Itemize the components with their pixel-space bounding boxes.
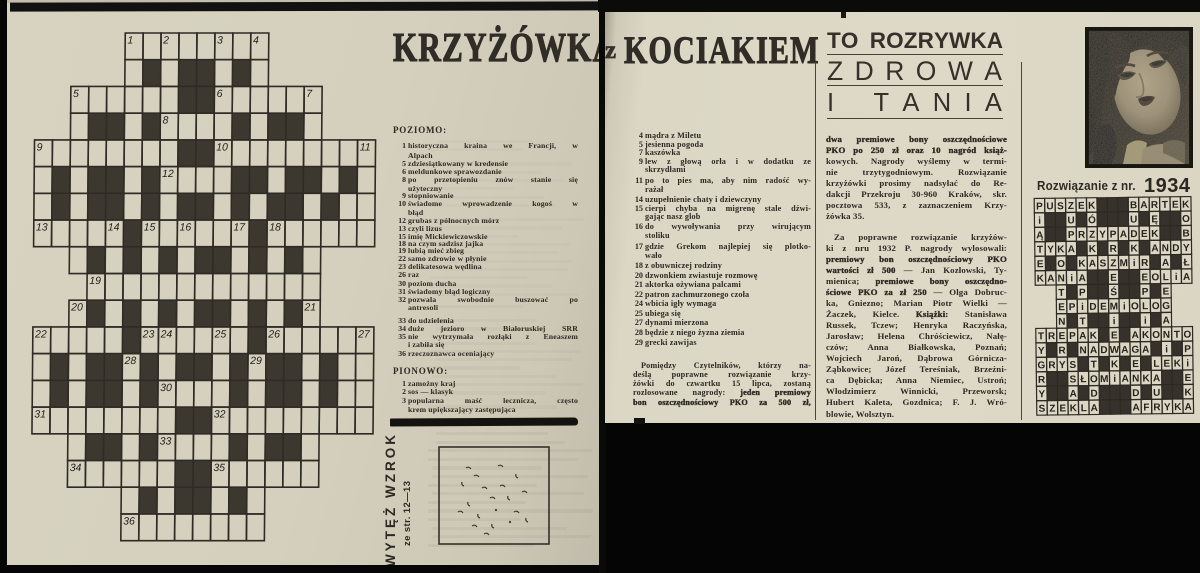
svg-text:30: 30 bbox=[160, 381, 172, 393]
svg-text:A: A bbox=[1091, 403, 1098, 414]
svg-text:O: O bbox=[1182, 214, 1190, 225]
svg-text:5: 5 bbox=[72, 87, 78, 99]
svg-text:6: 6 bbox=[216, 87, 222, 99]
svg-text:13: 13 bbox=[35, 221, 47, 233]
svg-text:A: A bbox=[1131, 330, 1138, 341]
svg-text:9: 9 bbox=[36, 141, 42, 153]
svg-text:i: i bbox=[1081, 302, 1084, 313]
svg-text:K: K bbox=[1182, 200, 1190, 211]
svg-text:D: D bbox=[1090, 389, 1097, 400]
svg-text:31: 31 bbox=[34, 408, 46, 420]
svg-text:D: D bbox=[1130, 229, 1137, 240]
svg-text:27: 27 bbox=[357, 328, 371, 340]
svg-text:11: 11 bbox=[359, 141, 370, 153]
svg-text:P: P bbox=[1184, 344, 1191, 355]
svg-text:K: K bbox=[1174, 359, 1182, 370]
svg-text:Y: Y bbox=[1038, 389, 1045, 400]
svg-text:A: A bbox=[1079, 331, 1086, 342]
svg-text:Y: Y bbox=[1047, 245, 1054, 256]
svg-text:Y: Y bbox=[1183, 243, 1190, 254]
svg-text:L: L bbox=[1081, 403, 1087, 414]
svg-text:15: 15 bbox=[143, 221, 155, 233]
svg-text:T: T bbox=[1037, 245, 1043, 256]
svg-text:E: E bbox=[1059, 403, 1066, 414]
svg-text:G: G bbox=[1037, 360, 1045, 371]
svg-text:R: R bbox=[1153, 402, 1161, 413]
svg-text:10: 10 bbox=[216, 141, 228, 153]
svg-text:E: E bbox=[1141, 229, 1148, 240]
svg-text:S: S bbox=[1070, 374, 1077, 385]
svg-text:25: 25 bbox=[213, 328, 226, 340]
svg-text:E: E bbox=[1132, 359, 1139, 370]
svg-text:Z: Z bbox=[1110, 258, 1116, 269]
svg-text:2: 2 bbox=[162, 34, 169, 46]
svg-text:O: O bbox=[1057, 259, 1065, 270]
svg-text:N: N bbox=[1163, 330, 1170, 341]
svg-text:20: 20 bbox=[70, 301, 83, 313]
svg-text:A: A bbox=[1090, 345, 1097, 356]
svg-text:D: D bbox=[1100, 345, 1107, 356]
svg-text:A: A bbox=[1047, 274, 1054, 285]
svg-text:O: O bbox=[1152, 330, 1160, 341]
svg-text:A: A bbox=[1069, 389, 1076, 400]
svg-text:i: i bbox=[1113, 374, 1116, 385]
svg-text:E: E bbox=[1172, 200, 1179, 211]
svg-text:P: P bbox=[1142, 287, 1149, 298]
svg-text:E: E bbox=[1110, 273, 1117, 284]
svg-text:E: E bbox=[1163, 359, 1170, 370]
svg-text:T: T bbox=[1038, 331, 1044, 342]
svg-text:E: E bbox=[1078, 201, 1085, 212]
svg-text:Ł: Ł bbox=[1183, 257, 1189, 268]
svg-text:U: U bbox=[1067, 215, 1074, 226]
svg-text:A: A bbox=[1068, 244, 1075, 255]
svg-text:22: 22 bbox=[33, 328, 46, 340]
svg-text:M: M bbox=[1110, 302, 1118, 313]
svg-text:3: 3 bbox=[217, 34, 223, 46]
svg-text:Z: Z bbox=[1089, 230, 1095, 241]
svg-text:8: 8 bbox=[162, 114, 168, 126]
svg-text:S: S bbox=[1039, 404, 1046, 415]
svg-text:T: T bbox=[1162, 200, 1168, 211]
svg-text:i: i bbox=[1133, 258, 1136, 269]
svg-text:D: D bbox=[1089, 302, 1096, 313]
svg-text:23: 23 bbox=[141, 328, 154, 340]
svg-text:Y: Y bbox=[1099, 229, 1106, 240]
svg-text:U: U bbox=[1153, 388, 1160, 399]
svg-text:M: M bbox=[1120, 258, 1128, 269]
svg-text:O: O bbox=[1151, 272, 1159, 283]
svg-text:N: N bbox=[1079, 345, 1086, 356]
svg-text:Y: Y bbox=[1164, 402, 1171, 413]
svg-text:A: A bbox=[1151, 243, 1158, 254]
svg-text:K: K bbox=[1142, 373, 1150, 384]
svg-text:P: P bbox=[1069, 331, 1076, 342]
svg-text:O: O bbox=[1152, 301, 1160, 312]
svg-text:E: E bbox=[1141, 272, 1148, 283]
svg-text:32: 32 bbox=[213, 408, 225, 420]
svg-text:B: B bbox=[1182, 228, 1189, 239]
svg-text:D: D bbox=[1132, 388, 1139, 399]
svg-text:U: U bbox=[1130, 215, 1137, 226]
svg-text:L: L bbox=[1153, 359, 1159, 370]
svg-text:Ł: Ł bbox=[1080, 374, 1086, 385]
svg-text:E: E bbox=[1100, 302, 1107, 313]
svg-text:B: B bbox=[1130, 200, 1137, 211]
svg-text:12: 12 bbox=[161, 168, 173, 180]
svg-text:i: i bbox=[1070, 273, 1073, 284]
svg-text:21: 21 bbox=[303, 301, 316, 313]
svg-text:Z: Z bbox=[1068, 201, 1074, 212]
svg-text:16: 16 bbox=[179, 221, 191, 233]
svg-text:K: K bbox=[1130, 243, 1138, 254]
svg-text:N: N bbox=[1162, 243, 1169, 254]
svg-text:O: O bbox=[1090, 374, 1098, 385]
svg-text:O: O bbox=[1183, 330, 1191, 341]
svg-text:14: 14 bbox=[107, 221, 119, 233]
svg-text:P: P bbox=[1036, 201, 1043, 212]
svg-text:E: E bbox=[1163, 287, 1170, 298]
svg-text:24: 24 bbox=[159, 328, 172, 340]
svg-text:Ą: Ą bbox=[1036, 230, 1043, 241]
svg-text:O: O bbox=[1131, 301, 1139, 312]
svg-text:A: A bbox=[1078, 273, 1085, 284]
svg-text:N: N bbox=[1132, 374, 1139, 385]
svg-text:R: R bbox=[1048, 331, 1056, 342]
svg-text:33: 33 bbox=[159, 435, 171, 447]
svg-text:R: R bbox=[1151, 200, 1159, 211]
svg-text:K: K bbox=[1037, 274, 1045, 285]
svg-text:R: R bbox=[1048, 360, 1056, 371]
svg-text:U: U bbox=[1046, 201, 1053, 212]
svg-text:P: P bbox=[1068, 230, 1075, 241]
svg-text:i: i bbox=[1186, 358, 1189, 369]
svg-text:R: R bbox=[1038, 375, 1046, 386]
svg-text:K: K bbox=[1090, 331, 1098, 342]
svg-text:K: K bbox=[1142, 330, 1150, 341]
svg-text:T: T bbox=[1091, 360, 1097, 371]
svg-text:Y: Y bbox=[1038, 346, 1045, 357]
svg-text:26: 26 bbox=[267, 328, 280, 340]
svg-text:36: 36 bbox=[123, 515, 135, 527]
svg-text:4: 4 bbox=[252, 34, 258, 46]
svg-text:P: P bbox=[1110, 229, 1117, 240]
svg-text:K: K bbox=[1151, 229, 1159, 240]
svg-text:A: A bbox=[1162, 258, 1169, 269]
svg-text:K: K bbox=[1184, 387, 1192, 398]
svg-text:A: A bbox=[1185, 402, 1192, 413]
svg-text:A: A bbox=[1163, 315, 1170, 326]
svg-text:A: A bbox=[1140, 200, 1147, 211]
svg-text:A: A bbox=[1121, 345, 1128, 356]
svg-text:D: D bbox=[1172, 243, 1179, 254]
svg-text:T: T bbox=[1080, 316, 1086, 327]
svg-text:K: K bbox=[1078, 259, 1086, 270]
svg-text:28: 28 bbox=[123, 355, 136, 367]
svg-text:A: A bbox=[1089, 259, 1096, 270]
svg-text:T: T bbox=[1058, 288, 1064, 299]
svg-text:N: N bbox=[1058, 317, 1065, 328]
svg-text:F: F bbox=[1143, 402, 1149, 413]
svg-text:L: L bbox=[1163, 272, 1169, 283]
svg-text:E: E bbox=[1059, 331, 1066, 342]
svg-text:1: 1 bbox=[127, 34, 133, 46]
svg-text:i: i bbox=[1038, 216, 1041, 227]
svg-text:E: E bbox=[1058, 302, 1065, 313]
svg-text:A: A bbox=[1122, 374, 1129, 385]
svg-text:G: G bbox=[1162, 301, 1170, 312]
svg-text:i: i bbox=[1113, 316, 1116, 327]
svg-text:Y: Y bbox=[1059, 360, 1066, 371]
svg-text:N: N bbox=[1058, 273, 1065, 284]
svg-text:i: i bbox=[1144, 316, 1147, 327]
svg-text:19: 19 bbox=[89, 275, 101, 287]
svg-text:E: E bbox=[1037, 259, 1044, 270]
svg-text:7: 7 bbox=[306, 87, 313, 99]
svg-text:A: A bbox=[1132, 402, 1139, 413]
svg-text:E: E bbox=[1184, 373, 1191, 384]
svg-text:K: K bbox=[1174, 402, 1182, 413]
svg-text:Z: Z bbox=[1049, 404, 1055, 415]
svg-text:W: W bbox=[1110, 345, 1120, 356]
svg-text:i: i bbox=[1165, 344, 1168, 355]
svg-text:S: S bbox=[1099, 258, 1106, 269]
svg-text:35: 35 bbox=[213, 462, 225, 474]
svg-text:i: i bbox=[1175, 272, 1178, 283]
svg-text:K: K bbox=[1111, 359, 1119, 370]
svg-text:L: L bbox=[1142, 301, 1148, 312]
svg-text:P: P bbox=[1079, 288, 1086, 299]
svg-text:R: R bbox=[1078, 230, 1086, 241]
svg-text:A: A bbox=[1183, 272, 1190, 283]
svg-text:K: K bbox=[1057, 244, 1065, 255]
svg-text:R: R bbox=[1141, 258, 1149, 269]
svg-text:R: R bbox=[1110, 244, 1118, 255]
svg-text:Ś: Ś bbox=[1110, 285, 1117, 298]
svg-text:A: A bbox=[1153, 373, 1160, 384]
svg-text:18: 18 bbox=[269, 221, 281, 233]
svg-text:P: P bbox=[1069, 302, 1076, 313]
svg-text:E: E bbox=[1111, 330, 1118, 341]
svg-text:34: 34 bbox=[69, 462, 81, 474]
svg-text:G: G bbox=[1131, 345, 1139, 356]
svg-text:i: i bbox=[1123, 301, 1126, 312]
svg-text:S: S bbox=[1057, 201, 1064, 212]
svg-text:Ę: Ę bbox=[1151, 214, 1158, 225]
svg-text:Ó: Ó bbox=[1088, 213, 1096, 226]
svg-text:K: K bbox=[1070, 403, 1078, 414]
svg-text:A: A bbox=[1120, 229, 1127, 240]
svg-text:K: K bbox=[1088, 201, 1096, 212]
svg-text:17: 17 bbox=[233, 221, 246, 233]
svg-text:29: 29 bbox=[249, 355, 262, 367]
svg-text:T: T bbox=[1174, 330, 1180, 341]
svg-text:A: A bbox=[1142, 345, 1149, 356]
svg-text:S: S bbox=[1069, 360, 1076, 371]
svg-text:M: M bbox=[1100, 374, 1108, 385]
svg-text:K: K bbox=[1089, 244, 1097, 255]
svg-text:R: R bbox=[1058, 346, 1066, 357]
